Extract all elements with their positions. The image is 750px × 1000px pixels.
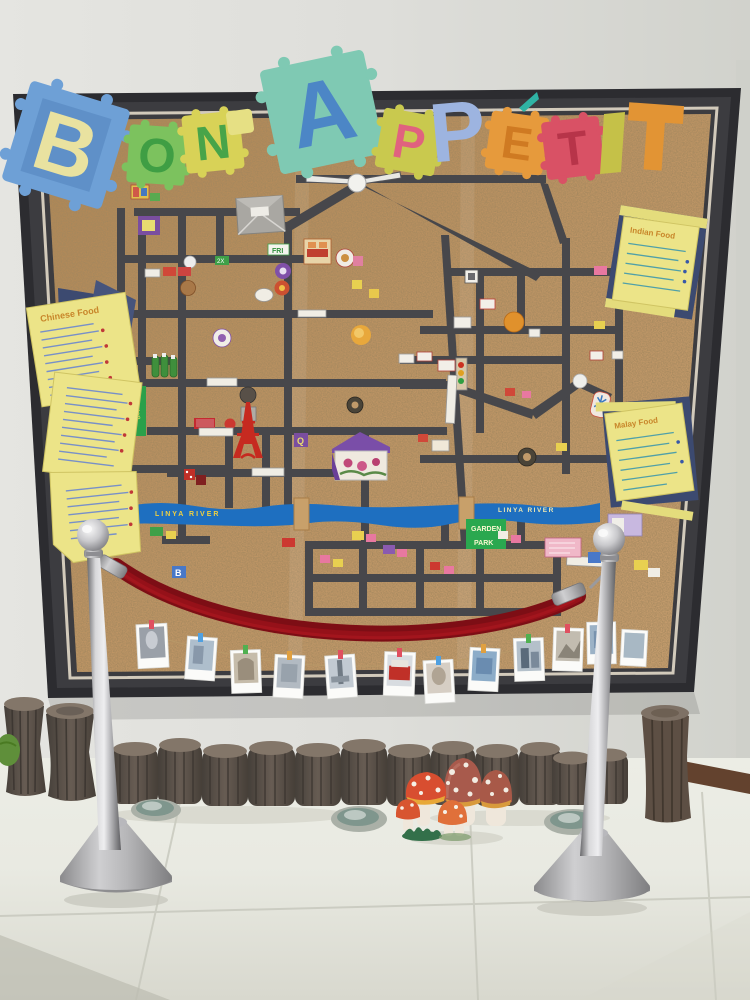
svg-text:O: O <box>136 129 177 184</box>
svg-text:LINYA RIVER: LINYA RIVER <box>155 511 220 518</box>
svg-text:B: B <box>175 568 182 578</box>
svg-text:FRI: FRI <box>272 248 283 255</box>
svg-text:LINYA RIVER: LINYA RIVER <box>498 507 555 514</box>
svg-text:PARK: PARK <box>474 540 493 547</box>
svg-text:Q: Q <box>297 436 304 446</box>
svg-text:2X: 2X <box>217 259 224 265</box>
svg-text:GARDEN: GARDEN <box>471 526 501 533</box>
svg-text:P: P <box>425 82 489 181</box>
